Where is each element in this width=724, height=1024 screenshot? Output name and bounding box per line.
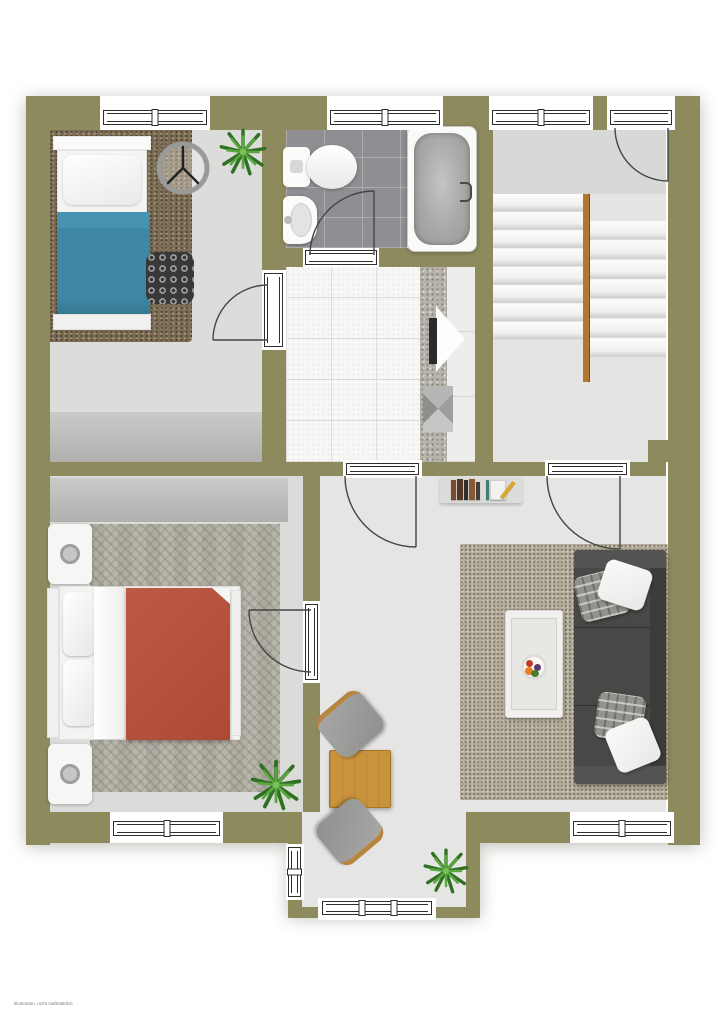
toilet-flush-button xyxy=(290,160,303,173)
stair-landing xyxy=(493,130,666,194)
window-mullion xyxy=(391,900,398,916)
wardrobe-bottom-bedroom xyxy=(50,478,288,522)
stairs-right-flight xyxy=(590,221,666,358)
wall-clock xyxy=(154,139,212,197)
patterned-pouf xyxy=(146,252,194,304)
window-bathroom xyxy=(330,110,440,125)
fruit-bowl xyxy=(521,654,547,680)
disclaimer-text: Illustration, nicht maßstäblich xyxy=(14,1001,73,1006)
window-mullion xyxy=(287,869,302,876)
door-kitchen xyxy=(346,463,419,475)
nightstand xyxy=(48,524,92,584)
wall-stairwell-notch xyxy=(648,440,668,462)
nightstand xyxy=(48,744,92,804)
window-mullion xyxy=(358,900,365,916)
single-bed-blanket xyxy=(57,212,149,316)
plant-icon xyxy=(248,756,304,814)
single-bed-pillow xyxy=(63,155,141,205)
window-bedroom-top xyxy=(103,110,207,125)
book xyxy=(486,480,489,500)
single-bed-footboard xyxy=(53,314,151,330)
door-bathroom xyxy=(305,250,377,265)
stair-handrail xyxy=(583,194,589,382)
window-stairwell xyxy=(492,110,590,125)
dining-table xyxy=(329,750,391,808)
book xyxy=(457,479,463,500)
counter-appliance xyxy=(429,318,437,364)
bathtub-handle xyxy=(460,182,472,202)
plant-icon xyxy=(216,126,270,178)
bed-pillow xyxy=(63,660,95,726)
lamp-icon xyxy=(60,764,80,784)
blanket-fold-corner xyxy=(212,588,230,604)
bed-sheet-drape xyxy=(94,587,128,739)
window-bay-front xyxy=(322,901,432,915)
book xyxy=(476,482,480,500)
wardrobe-top-bedroom xyxy=(50,412,262,462)
door-bedroom-top xyxy=(264,273,283,347)
floor-plan: Illustration, nicht maßstäblich xyxy=(0,0,724,1024)
wall-kitchen-stairwell xyxy=(475,130,493,462)
window-bedroom-bottom xyxy=(113,821,220,836)
counter-appliance-door xyxy=(436,306,465,372)
toilet-bowl xyxy=(307,145,357,189)
plant-icon xyxy=(420,846,472,896)
fruit xyxy=(531,670,539,677)
lamp-icon xyxy=(60,544,80,564)
single-bed-headboard xyxy=(53,136,151,150)
fruit xyxy=(526,660,533,667)
book xyxy=(451,480,456,500)
double-bed-blanket xyxy=(126,588,230,740)
double-bed-headboard xyxy=(47,588,59,738)
door-entry-stairwell xyxy=(610,110,672,125)
coffee-table xyxy=(505,610,563,718)
window-mullion xyxy=(163,820,170,837)
book xyxy=(469,479,475,500)
bookshelf xyxy=(440,477,522,503)
window-bay-side xyxy=(288,847,301,897)
window-mullion xyxy=(152,109,159,126)
window-mullion xyxy=(382,109,389,126)
kitchen-floor-tiles xyxy=(286,267,420,462)
washbasin-bowl xyxy=(290,203,312,237)
double-bed-footboard xyxy=(231,590,241,736)
window-living-room xyxy=(573,821,671,836)
washbasin-tap xyxy=(284,216,292,224)
bed-pillow xyxy=(63,592,95,656)
wall-right xyxy=(668,130,700,845)
door-stairwell-hall xyxy=(548,463,627,475)
book xyxy=(464,480,468,500)
counter-item xyxy=(423,386,453,432)
stairs-left-flight xyxy=(493,194,583,340)
window-mullion xyxy=(619,820,626,837)
window-mullion xyxy=(538,109,545,126)
door-bedroom-bottom xyxy=(305,604,318,680)
